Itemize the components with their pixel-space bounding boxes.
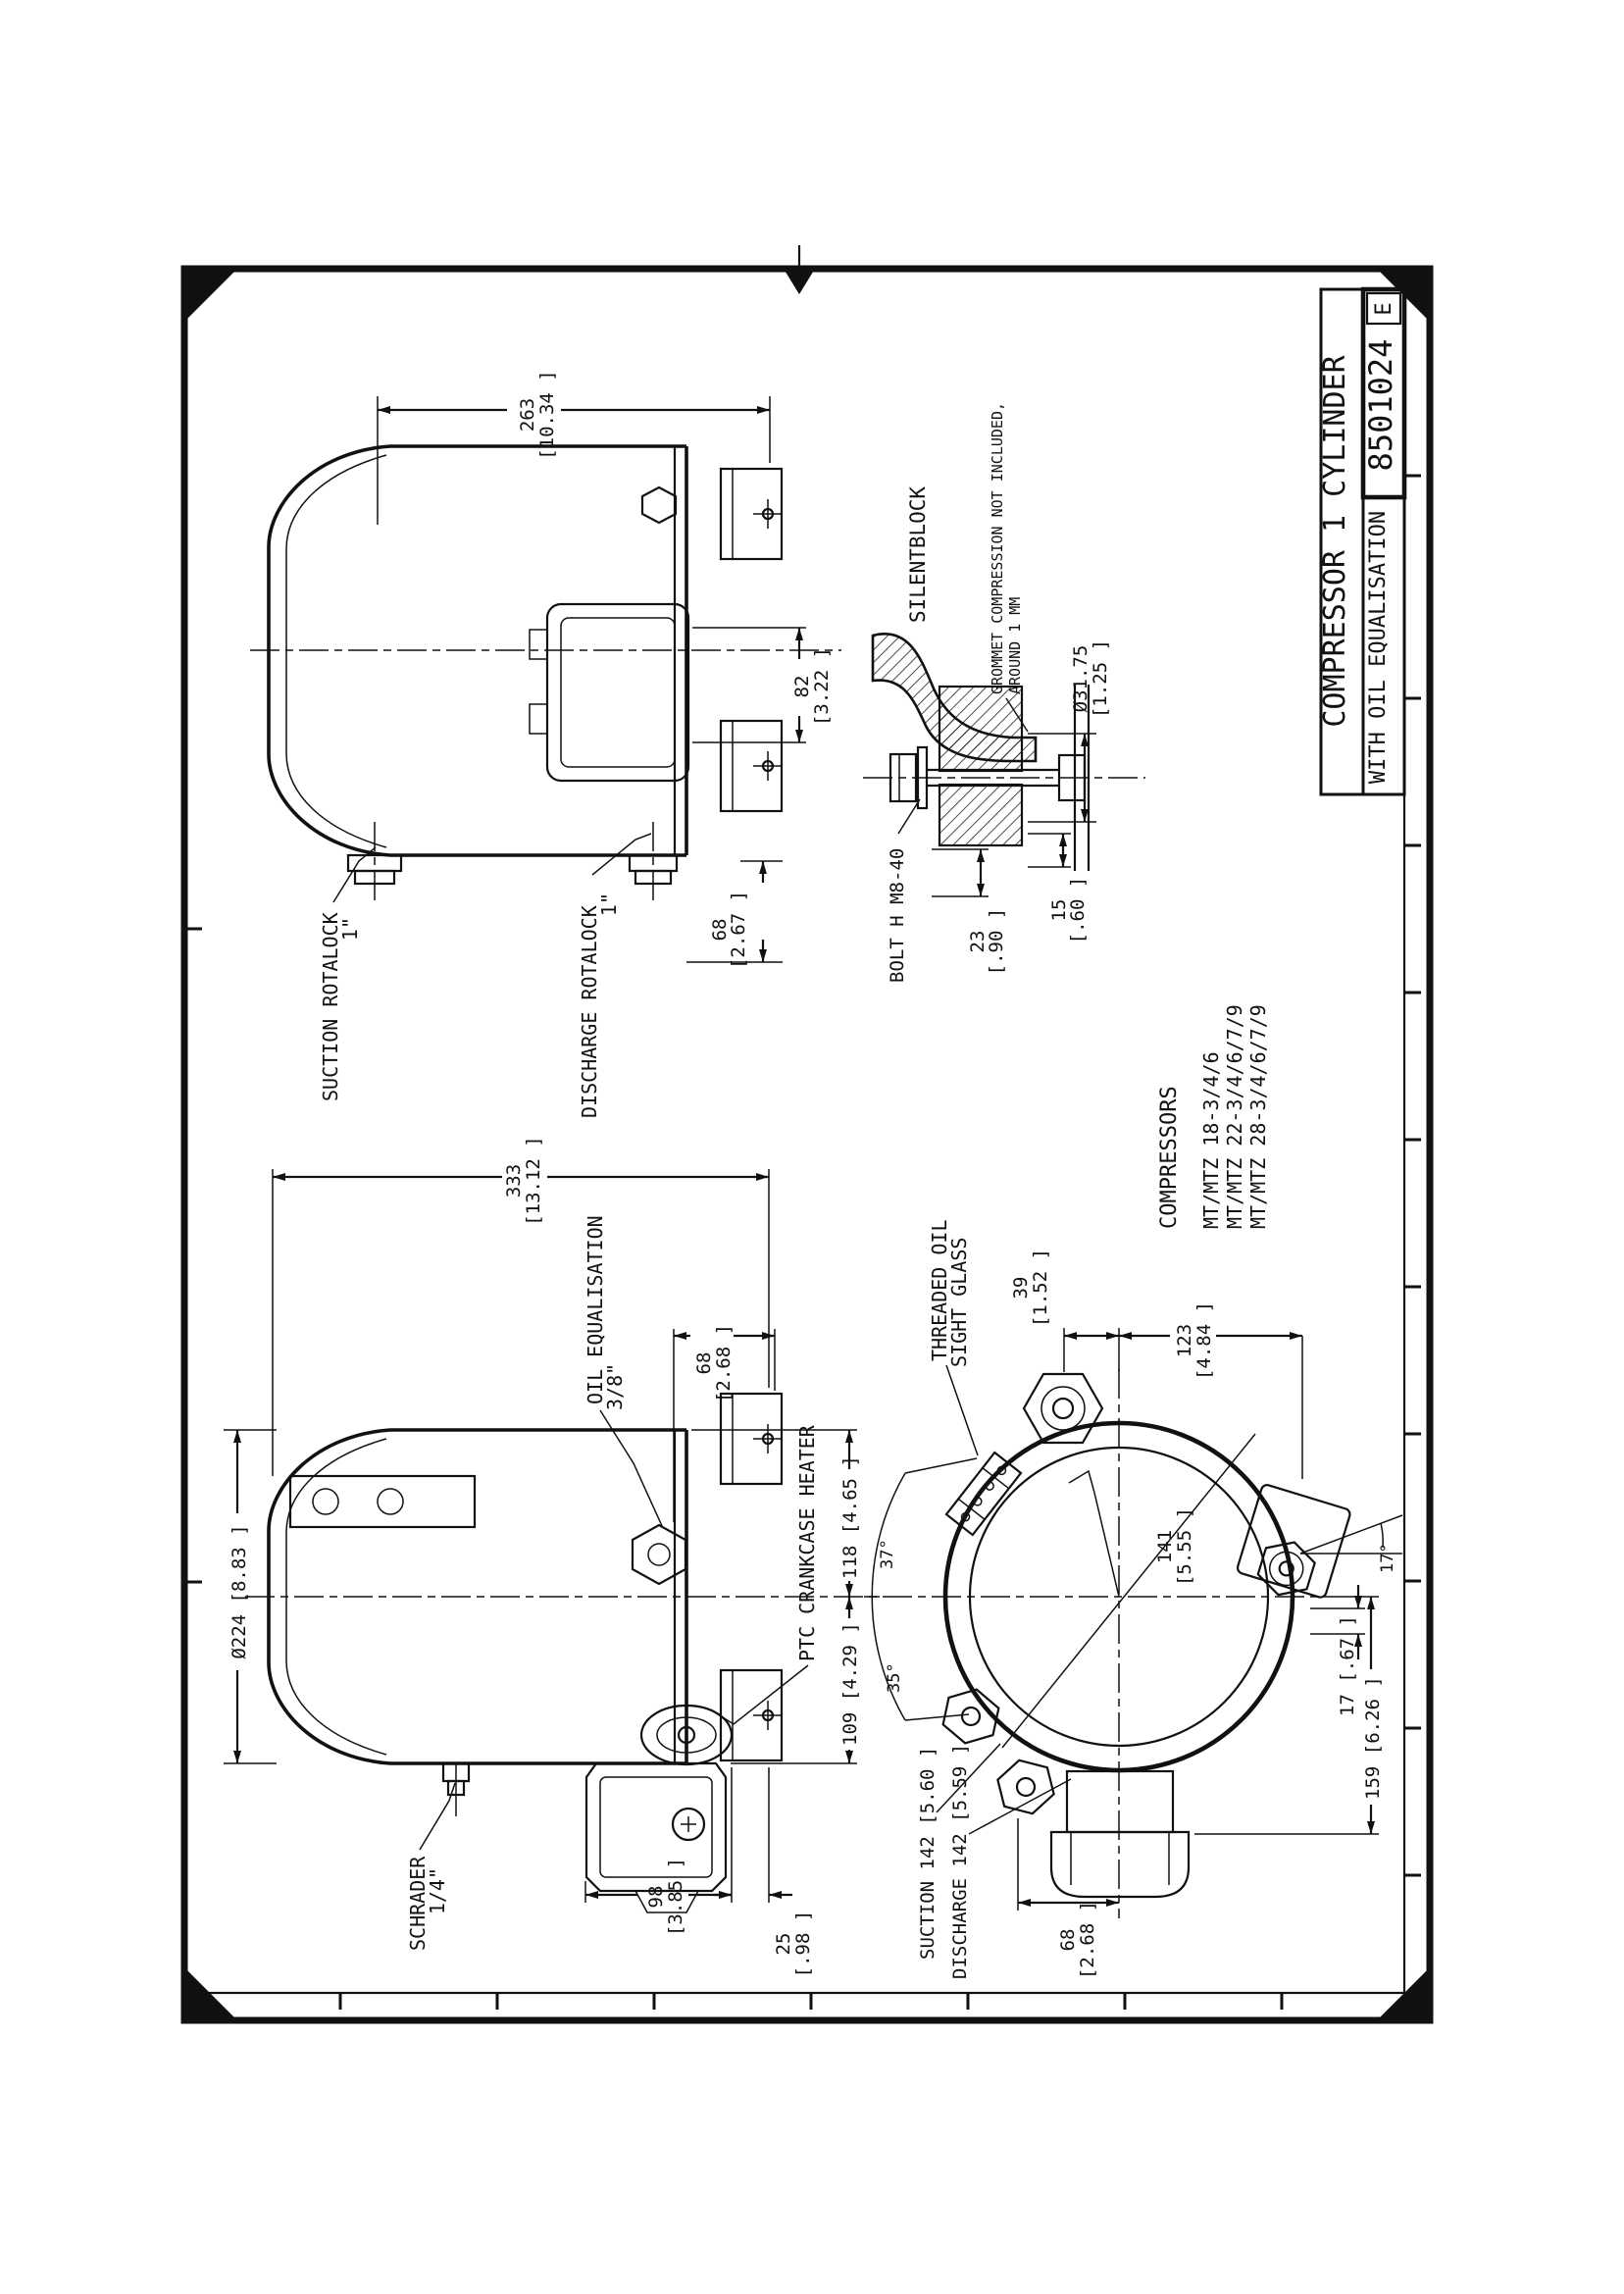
dim-25-mm: 25 [773, 1933, 794, 1956]
angle-37: 37° [878, 1539, 897, 1569]
revision-letter: E [1372, 302, 1396, 315]
dim-263-in: [10.34 ] [536, 370, 558, 460]
compressor-list: COMPRESSORS MT/MTZ 18-3/4/6 MT/MTZ 22-3/… [1157, 1004, 1270, 1229]
dim-68-bottom-mm: 68 [1057, 1929, 1079, 1952]
dim-159-label: 159 [6.26 ] [1362, 1676, 1384, 1800]
bottom-rotalock-fitting [1051, 1771, 1189, 1897]
dim-82-mm: 82 [791, 676, 813, 698]
compressor-model: MT/MTZ 28-3/4/6/7/9 [1246, 1004, 1270, 1229]
side-view-top: 263 [10.34 ] 82 [3.22 ] 68 [2.67 ] SUCTI… [250, 370, 841, 1118]
silentblock-detail: SILENTBLOCK GROMMET COMPRESSION NOT INCL… [863, 402, 1145, 983]
silentblock-heading: SILENTBLOCK [906, 486, 930, 623]
dim-68-oileq-in: [2.68 ] [713, 1324, 735, 1402]
dim-39-in: [1.52 ] [1030, 1249, 1051, 1327]
dim-68-oileq-mm: 68 [693, 1352, 715, 1375]
compressor-list-heading: COMPRESSORS [1157, 1086, 1182, 1229]
plug-hex [642, 487, 676, 523]
label-bolt: BOLT H M8-40 [887, 848, 908, 983]
suction-rotalock-fitting [348, 822, 401, 904]
mounting-foot [721, 1670, 783, 1760]
label-oil-equalisation-size: 3/8" [603, 1363, 627, 1410]
label-discharge-rotalock: DISCHARGE ROTALOCK [578, 905, 601, 1118]
dim-17-label: 17 [.67 ] [1337, 1615, 1358, 1716]
drawing-number: 8501024 [1362, 339, 1399, 472]
dim-123-mm: 123 [1174, 1324, 1195, 1357]
drawing-sheet: COMPRESSOR 1 CYLINDER WITH OIL EQUALISAT… [0, 0, 1624, 2294]
terminal-box [530, 604, 688, 781]
dim-3175-in: [1.25 ] [1090, 639, 1111, 718]
sheet-title: COMPRESSOR 1 CYLINDER [1318, 354, 1352, 727]
top-view: 141 [5.55 ] 39 [1.52 ] 123 [4.84 ] [864, 1220, 1402, 1980]
dim-263-mm: 263 [517, 398, 538, 432]
border-ticks-bottom [340, 1993, 1282, 2010]
schrader-fitting [443, 1763, 469, 1816]
discharge-connection-hex [994, 1755, 1057, 1820]
dim-68-foot: 68 [2.67 ] [686, 861, 783, 969]
dim-68-oileq: 68 [2.68 ] [674, 1324, 775, 1522]
dim-68-foot-in: [2.67 ] [728, 891, 749, 969]
top-center-fold-mark [784, 269, 815, 294]
dim-123-in: [4.84 ] [1193, 1301, 1215, 1380]
dim-141-in: [5.55 ] [1174, 1507, 1195, 1586]
label-suction-size: 1" [338, 917, 362, 941]
dim-23-in: [.90 ] [986, 908, 1007, 976]
dim-68-bottom: 68 [2.68 ] [1018, 1818, 1119, 1979]
oil-equalisation-connector [633, 1525, 685, 1584]
dim-39-123: 39 [1.52 ] 123 [4.84 ] [1010, 1249, 1302, 1479]
dim-141-mm: 141 [1154, 1530, 1176, 1563]
dim-98-mm: 98 [645, 1886, 667, 1909]
title-block: COMPRESSOR 1 CYLINDER WITH OIL EQUALISAT… [1318, 289, 1404, 794]
dim-98-25: 98 [3.85 ] 25 [.98 ] [585, 1767, 814, 1977]
grommet-upper [939, 687, 1022, 771]
dim-109: 109 [4.29 ] [839, 1622, 861, 1746]
dim-82: 82 [3.22 ] [692, 628, 833, 742]
grommet-note-line1: GROMMET COMPRESSION NOT INCLUDED, [989, 402, 1006, 694]
dim-98-in: [3.85 ] [665, 1858, 686, 1936]
compressor-model: MT/MTZ 18-3/4/6 [1199, 1051, 1223, 1229]
dim-118: 118 [4.65 ] [839, 1455, 861, 1579]
label-sight-glass-line2: SIGHT GLASS [947, 1238, 971, 1367]
dim-23: 23 [.90 ] [932, 849, 1007, 975]
angle-35: 35° [885, 1662, 904, 1693]
sheet-subtitle: WITH OIL EQUALISATION [1366, 511, 1391, 784]
discharge-rotalock-fitting [630, 822, 677, 904]
dim-82-in: [3.22 ] [811, 647, 833, 726]
angle-17-wedge: 17° [1300, 1515, 1402, 1573]
dim-39-mm: 39 [1010, 1277, 1032, 1300]
angle-17: 17° [1378, 1543, 1397, 1573]
dim-15: 15 [.60 ] [1028, 834, 1089, 943]
label-schrader-size: 1/4" [426, 1867, 449, 1914]
foot-plate [290, 1476, 475, 1527]
label-ptc-heater: PTC CRANKCASE HEATER [795, 1424, 819, 1661]
dim-25-in: [.98 ] [792, 1911, 814, 1978]
side-mount-bracket [1234, 1484, 1351, 1608]
mounting-foot [721, 469, 783, 559]
dim-68-bottom-in: [2.68 ] [1077, 1901, 1098, 1979]
mounting-foot [721, 721, 783, 811]
dim-333-mm: 333 [503, 1164, 525, 1198]
dim-17: 17 [.67 ] [1310, 1585, 1365, 1716]
dim-333-in: [13.12 ] [523, 1136, 544, 1226]
dim-224: Ø224 [8.83 ] [228, 1524, 250, 1658]
label-discharge-position: DISCHARGE 142 [5.59 ] [949, 1744, 971, 1979]
compressor-model: MT/MTZ 22-3/4/6/7/9 [1223, 1004, 1246, 1229]
dim-15-in: [.60 ] [1067, 877, 1089, 944]
label-discharge-size: 1" [597, 892, 621, 916]
dim-333: 333 [13.12 ] [273, 1136, 769, 1476]
mounting-foot [721, 1394, 783, 1484]
label-suction-position: SUCTION 142 [5.60 ] [917, 1747, 939, 1960]
grommet-lower [939, 785, 1022, 845]
dim-3175-mm: Ø31.75 [1070, 645, 1091, 713]
border-ticks-right [1404, 476, 1421, 1875]
dim-grommet-diameter: Ø31.75 [1.25 ] [1028, 639, 1111, 822]
grommet-note-line2: AROUND 1 MM [1006, 597, 1024, 694]
